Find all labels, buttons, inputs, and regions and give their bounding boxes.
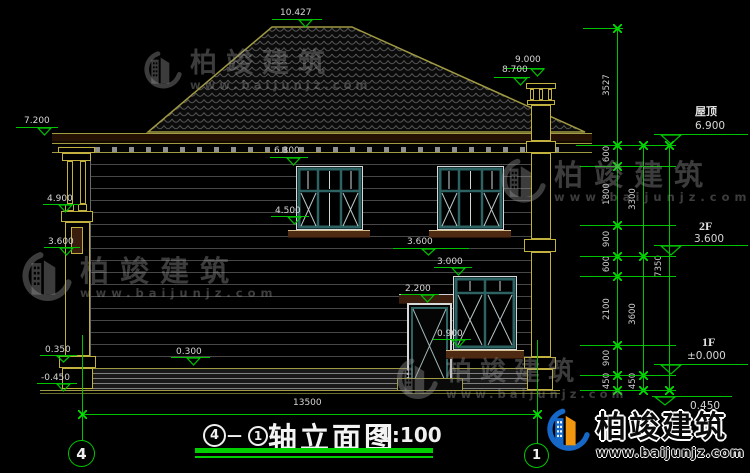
chain-dim-label: 3600	[628, 290, 638, 338]
elevation-triangle-icon	[420, 294, 435, 303]
chain-dim-label: 450	[628, 357, 638, 405]
elevation-triangle-icon	[660, 364, 682, 375]
axis-bubble-4-label: 4	[76, 445, 86, 463]
brand-logo: 柏竣建筑 www.baijunjz.com	[540, 400, 745, 462]
axis-bubble-4: 4	[68, 440, 95, 467]
dim-label: 0.300	[176, 347, 202, 357]
watermark-brand: 柏竣建筑	[446, 359, 627, 386]
dim-label: 4.900	[47, 194, 73, 204]
cad-elevation-canvas: 10.4279.0008.7007.2006.3004.9004.5003.60…	[0, 0, 750, 473]
chain-dim-label: 7350	[654, 242, 664, 290]
elevation-triangle-icon	[298, 19, 313, 28]
overall-dimension-text: 13500	[293, 398, 322, 408]
floor1-label: 1F	[702, 335, 715, 350]
extension-line	[580, 345, 676, 346]
elevation-triangle-icon	[186, 357, 201, 366]
watermark-left: 柏竣建筑 www.baijunjz.com	[14, 246, 277, 310]
dim-label: 0.350	[45, 345, 71, 355]
brand-logo-url: www.baijunjz.com	[596, 446, 745, 461]
dimension-tick-left	[78, 410, 87, 419]
title-bubble-1: 1	[248, 426, 268, 446]
chain-dim-label: 3527	[602, 61, 612, 109]
elevation-triangle-icon	[421, 248, 436, 256]
extension-line	[576, 145, 676, 146]
chain-dim-label: 2100	[602, 285, 612, 333]
watermark-brand: 柏竣建筑	[554, 160, 750, 190]
dim-label: 6.300	[274, 146, 300, 156]
roof-level-value: 6.900	[695, 120, 725, 132]
extension-line	[583, 28, 623, 29]
dim-label: 7.200	[24, 116, 50, 126]
watermark-building-icon	[14, 246, 72, 310]
elevation-triangle-icon	[287, 216, 302, 225]
dim-label: 8.700	[502, 65, 528, 75]
elevation-triangle-icon	[451, 267, 466, 276]
chain-dim-label: 600	[602, 240, 612, 288]
title-dash: —	[227, 426, 242, 444]
floor2-value: 3.600	[694, 233, 724, 245]
title-bubble-4-label: 4	[210, 428, 219, 443]
elevation-triangle-icon	[530, 68, 545, 77]
dim-label: 10.427	[280, 8, 312, 18]
watermark-top: 柏竣建筑 www.baijunjz.com	[138, 46, 371, 96]
extension-line	[580, 225, 676, 226]
drawing-scale: 1:100	[378, 423, 442, 447]
dim-label: 3.600	[407, 237, 433, 247]
watermark-building-icon	[494, 152, 546, 212]
title-underline-thick	[195, 448, 433, 453]
elevation-triangle-icon	[513, 77, 528, 86]
extension-line	[580, 276, 676, 277]
elevation-triangle-icon	[451, 339, 466, 348]
dim-label: 3.000	[437, 257, 463, 267]
roof-level-label: 屋顶	[695, 103, 717, 119]
dim-label: -0.450	[41, 373, 70, 383]
watermark-building-icon	[138, 46, 182, 96]
brand-logo-icon	[540, 400, 590, 462]
extension-line	[580, 256, 676, 257]
floor1-value: ±0.000	[687, 350, 726, 362]
brand-logo-text: 柏竣建筑	[596, 402, 745, 446]
title-bubble-1-label: 1	[254, 429, 262, 443]
dim-label: 2.200	[405, 284, 431, 294]
title-underline-thin	[195, 456, 433, 458]
axis-4-line	[82, 335, 83, 441]
dim-label: 0.900	[437, 329, 463, 339]
title-bubble-4: 4	[203, 424, 226, 447]
watermark-brand: 柏竣建筑	[190, 50, 371, 78]
elevation-triangle-icon	[58, 204, 73, 213]
dim-label: 4.500	[275, 206, 301, 216]
watermark-url: www.baijunjz.com	[446, 387, 627, 401]
elevation-triangle-icon	[56, 383, 71, 392]
watermark-brand: 柏竣建筑	[80, 256, 277, 286]
watermark-url: www.baijunjz.com	[554, 190, 750, 204]
watermark-url: www.baijunjz.com	[190, 78, 371, 92]
watermark-url: www.baijunjz.com	[80, 286, 277, 300]
dim-label: 9.000	[515, 55, 541, 65]
elevation-triangle-icon	[37, 127, 52, 136]
watermark-right: 柏竣建筑 www.baijunjz.com	[494, 152, 750, 212]
floor2-label: 2F	[699, 219, 712, 234]
elevation-triangle-icon	[286, 157, 301, 166]
elevation-triangle-icon	[56, 355, 71, 363]
watermark-building-icon	[390, 352, 438, 408]
